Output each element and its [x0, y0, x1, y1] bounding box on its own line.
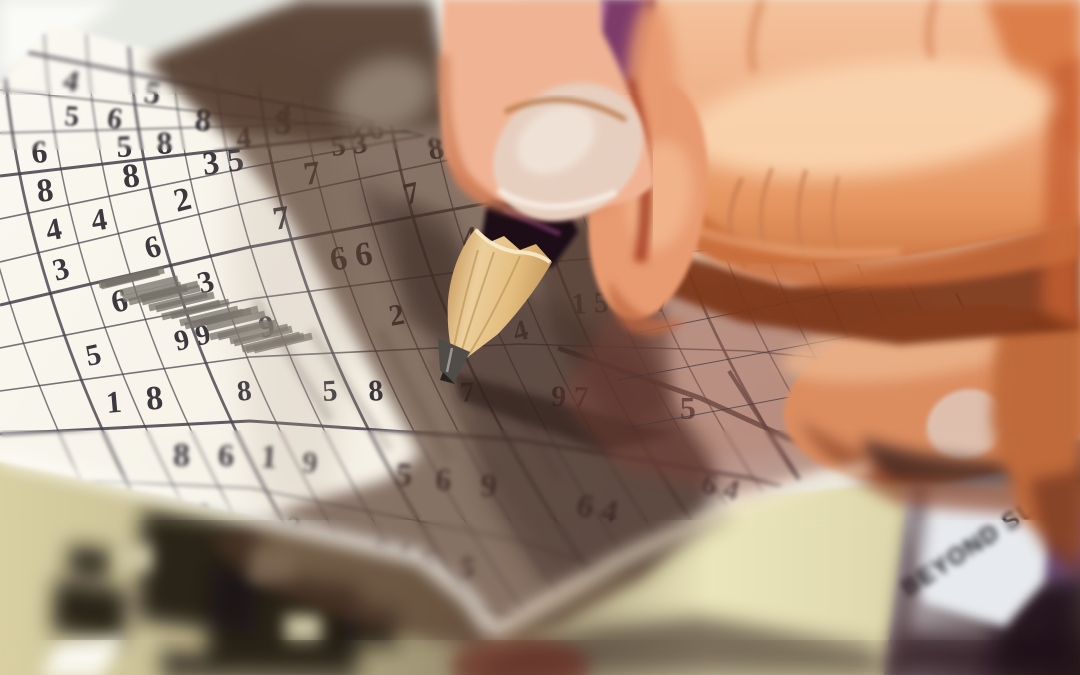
svg-text:1: 1: [105, 384, 123, 420]
svg-text:6: 6: [218, 437, 234, 473]
svg-text:5: 5: [64, 100, 81, 133]
svg-text:8: 8: [173, 437, 190, 474]
svg-text:8: 8: [156, 124, 173, 161]
svg-text:6: 6: [30, 133, 48, 170]
svg-text:5: 5: [116, 128, 133, 164]
